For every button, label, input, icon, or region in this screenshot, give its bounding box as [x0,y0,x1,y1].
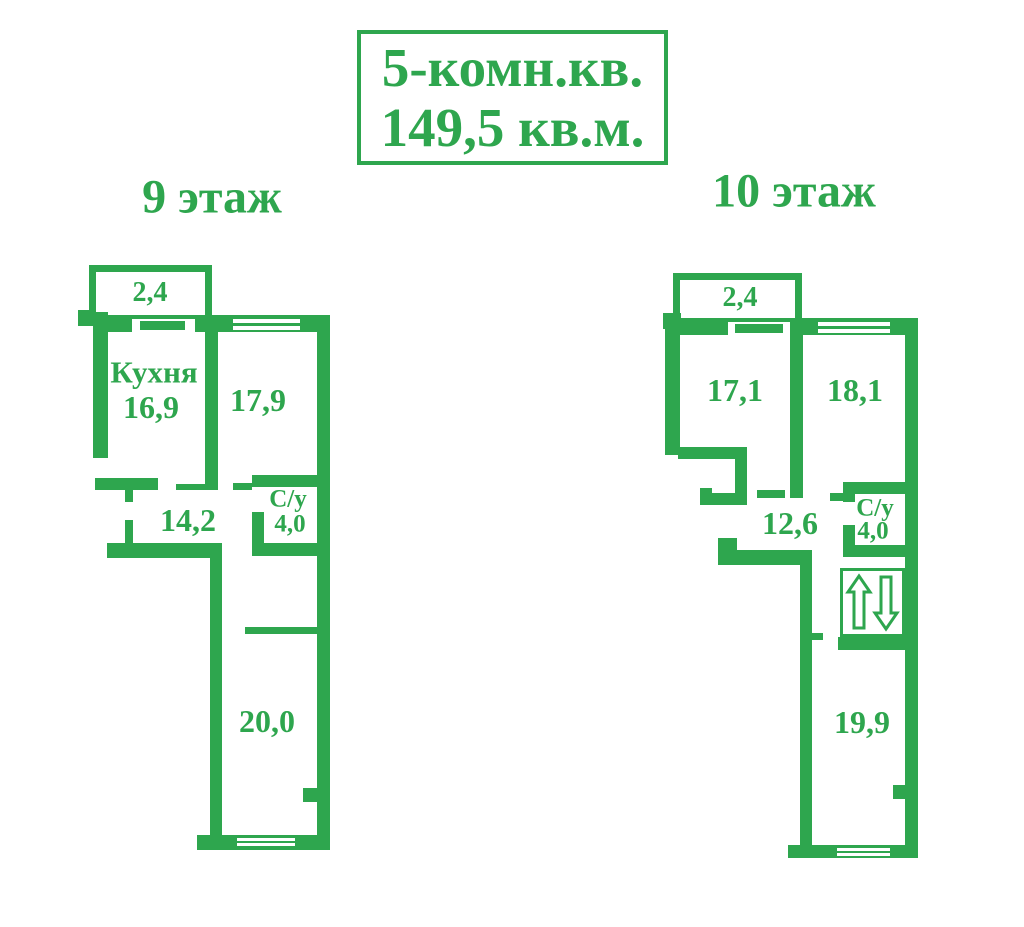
window-room2-slit2 [818,329,890,333]
window-room1-slit1 [233,319,300,323]
wall-bath-left-b [843,525,855,545]
balcony-door-bar [735,324,783,333]
wall-hall-top-a [176,484,205,490]
label-bath-area-10: 4,0 [857,519,888,544]
wall-balcony-top [673,273,802,280]
wall-hall-bottom [107,543,220,558]
wall-mid-left [800,565,812,858]
floorplan-canvas: 5-комн.кв. 149,5 кв.м. 9 этаж 10 этаж [0,0,1024,927]
wall-hall-bottom [718,550,812,565]
title-line1: 5-комн.кв. [382,38,643,98]
arrow-up-icon [848,576,870,628]
wall-mid-left [210,543,222,835]
wall-hall-left-b [125,520,133,543]
wall-right-outer [317,315,330,850]
label-room2-area-10: 18,1 [827,374,883,406]
wall-bath-left [252,512,264,543]
wall-partition-room1-room2 [790,335,803,498]
wall-right-bump [893,785,905,799]
wall-right-outer [905,318,918,858]
wall-hall-top-b [233,483,252,490]
wall-top-a [680,318,728,335]
label-hall-area-9: 14,2 [160,504,216,536]
wall-top-a [96,315,132,332]
label-bath-area-9: 4,0 [274,512,305,537]
label-room1-area-10: 17,1 [707,374,763,406]
wall-room2-top [245,627,317,634]
balcony-door-lintel [132,315,195,319]
wall-hall-bottom-tab [718,538,737,550]
window-room3-slit2 [837,853,890,856]
wall-bath-door-stub [830,493,843,501]
wall-room3-door-stub [812,633,823,640]
wall-left-outer [665,315,680,455]
wall-partition-kitchen-room1 [205,332,218,490]
wall-bath-left-a [843,494,855,502]
wall-bath-top [843,482,917,494]
wall-room1-bottom [678,447,740,459]
floor-label-10: 10 этаж [712,164,876,219]
label-bath-name-9: С/у [269,487,307,512]
wall-balcony-right [795,273,802,322]
wall-balcony-right [205,265,212,320]
title-box: 5-комн.кв. 149,5 кв.м. [357,30,668,165]
label-room2-area-9: 20,0 [239,705,295,737]
window-room3-slit1 [837,848,890,851]
wall-nook-tab [700,488,712,505]
stairs-up-down-icon [843,571,902,634]
stairs-box [840,568,905,637]
wall-bath-bottom [843,545,917,557]
title-line2: 149,5 кв.м. [381,98,645,158]
label-kitchen-area: 16,9 [123,391,179,423]
floor-label-9: 9 этаж [142,170,282,225]
balcony-door-lintel [728,318,790,322]
window-room2-slit1 [818,322,890,326]
wall-right-bump [303,788,317,802]
wall-under-stairs [838,637,905,650]
wall-hall-left-a [125,490,133,502]
wall-bottom [788,845,918,858]
floorplan-floor10: 2,4 17,1 18,1 12,6 С/у 4,0 19,9 [660,265,922,865]
label-hall-area-10: 12,6 [762,507,818,539]
wall-bath-bottom [252,543,330,556]
label-room3-area-10: 19,9 [834,706,890,738]
wall-balcony-top [89,265,212,272]
label-balcony-area-9: 2,4 [133,279,168,307]
arrow-down-icon [875,577,897,629]
balcony-door-bar [140,321,185,330]
window-room2-slit2 [237,843,295,846]
wall-top-b [195,315,233,332]
label-kitchen-name: Кухня [110,357,197,388]
wall-left-outer [93,312,108,458]
label-balcony-area-10: 2,4 [723,284,758,312]
floorplan-floor9: 2,4 Кухня 16,9 17,9 14,2 С/у 4,0 20,0 [75,260,337,860]
wall-top-b [790,318,818,335]
wall-kitchen-bottom [95,478,158,490]
label-room1-area-9: 17,9 [230,384,286,416]
wall-hall-top [757,490,785,498]
window-room1-slit2 [233,326,300,330]
window-room2-slit1 [237,838,295,841]
